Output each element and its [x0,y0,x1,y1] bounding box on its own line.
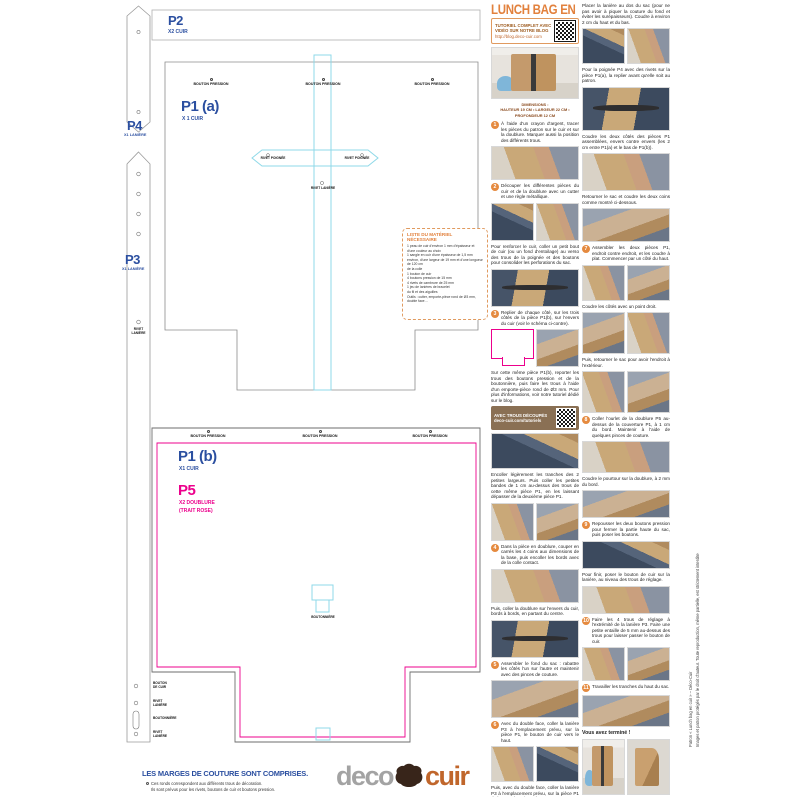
step-photo [536,746,579,782]
tutorial-step-text: Puis, avec du double face, coller la lan… [491,785,579,797]
step-number-badge: 5 [491,661,499,669]
step-photo [491,569,579,603]
snap-marker: BOUTON PRESSION [185,430,231,438]
step-photo [582,208,670,242]
step-photo [582,312,625,354]
step-instruction: Puis, retourner le sac pour avoir l'endr… [582,357,670,368]
fold-diagram-row [491,329,579,367]
pattern-drawing [0,0,490,800]
snap-hole-icon [429,430,432,433]
strap-rivet-label: RIVET LANIÈRE [306,187,340,191]
step-instruction: Encoller légèrement les tranches des 2 p… [491,472,579,500]
p2-outline [152,10,480,40]
tutorial-step-text: 11Travailler les tranches du haut du sac… [582,684,670,692]
step-instruction: Dans la pièce en doublure, couper en car… [501,544,579,566]
step-photo-pair [582,647,670,681]
step-instruction: Puis, avec du double face, coller la lan… [491,785,579,797]
tutorial-title: LUNCH BAG EN CUIR [491,3,579,17]
step-instruction: Puis, coller la doublure sur l'envers du… [491,606,579,617]
buttonhole-label: BOUTONNIÈRE [153,717,187,721]
deco-cuir-logo: deco cuir [336,758,469,794]
step-number-badge: 8 [582,416,590,424]
step-instruction: Coudre les côtés avec un point droit. [582,304,657,310]
step-photo [582,28,625,64]
p1a-label: P1 (a) [181,98,219,115]
step-instruction: Avec du double face, coller la lanière P… [501,721,579,743]
handle-rivet-label: RIVET POIGNÉE [256,157,290,161]
step-photo [582,265,625,301]
step-instruction: Pour la poignée P4 avec des rivets sur l… [582,67,670,84]
p2-sub: X2 CUIR [168,29,188,35]
materials-box: LISTE DU MATÉRIEL NÉCESSAIRE 1 peau de c… [402,228,488,320]
strap-rivet-label: RIVETLANIÈRE [153,700,179,707]
step-photo [491,433,579,469]
step-photo [491,746,534,782]
step-instruction: Découper les différentes pièces du cuir … [501,183,579,200]
qr-code-icon [555,21,575,41]
p1a-sub: X 1 CUIR [182,116,203,122]
step-photo-pair [582,28,670,64]
tutorial-step-text: 10Faire les 4 trous de réglage à l'extré… [582,617,670,645]
materials-title: LISTE DU MATÉRIEL NÉCESSAIRE [407,232,483,242]
tutorial-step-text: Pour renforcer le cuir, coller un petit … [491,244,579,266]
snap-hole-icon [322,78,325,81]
p1b-sub: X1 CUIR [179,466,199,472]
step-number-badge: 7 [582,245,590,253]
blog-url: http://blog.deco-cuir.com [495,34,552,40]
tutorial-step-text: Coudre les deux côtés des pièces P1 asse… [582,134,670,151]
p4-sub: X1 LANIÈRE [124,133,146,137]
step-photo-pair [491,203,579,241]
copyright-line-2: Images et patron protégés par le droit d… [695,552,700,747]
footer-note: Ils sont prévus pour les rivets, boutons… [151,787,275,792]
blog-qr-box: TUTORIEL COMPLET AVEC VIDÉO SUR NOTRE BL… [491,18,579,44]
tutorial-step-text: 7Assembler les deux pièces P1, endroit c… [582,245,670,262]
step-photo [491,269,579,307]
logo-text-deco: deco [336,761,393,792]
step-instruction: Travailler les tranches du haut du sac. [592,684,669,692]
tutorial-step-text: Encoller légèrement les tranches des 2 p… [491,472,579,500]
finished-message: Vous avez terminé ! [582,730,670,736]
step-instruction: Faire les 4 trous de réglage à l'extrémi… [592,617,670,645]
p4-outline [127,6,150,132]
tutorial-step-text: 8Coller l'ourlet de la doublure P5 au-de… [582,416,670,438]
p1b-label: P1 (b) [178,448,217,465]
handle-rivet-label: RIVET POIGNÉE [340,157,374,161]
p5-sub: X2 DOUBLURE [179,500,215,506]
buttonhole-label: BOUTONNIÈRE [305,616,341,620]
tutorial-step-text: Coudre les côtés avec un point droit. [582,304,670,310]
logo-text-cuir: cuir [425,761,469,792]
step-number-badge: 1 [491,121,499,129]
step-photo [491,503,534,541]
step-photo [536,329,579,367]
blog-qr-text: TUTORIEL COMPLET AVEC VIDÉO SUR NOTRE BL… [495,23,552,40]
step-photo [491,680,579,718]
step-number-badge: 6 [491,721,499,729]
snap-hole-icon [207,430,210,433]
step-instruction: Coudre les deux côtés des pièces P1 asse… [582,134,670,151]
step-photo [582,441,670,473]
tutorial-step-text: Puis, retourner le sac pour avoir l'endr… [582,357,670,368]
tutorial-step-text: 9Repousser les deux boutons pression pou… [582,521,670,538]
step-photo-pair [491,503,579,541]
step-photo [582,739,625,795]
tutorial-step-text: Puis, coller la doublure sur l'envers du… [491,606,579,617]
tutorial-qr-box: AVEC TROUS DÉCOUPÉSdeco-cuir.com/tutorie… [491,406,579,430]
tutorial-step-text: 2Découper les différentes pièces du cuir… [491,183,579,200]
strap-rivet-label: RIVETLANIÈRE [153,731,179,738]
step-photo [491,47,579,99]
tutorial-step-text: Retourner le sac et coudre les deux coin… [582,194,670,205]
step-instruction: Retourner le sac et coudre les deux coin… [582,194,670,205]
step-instruction: Replier de chaque côté, sur les trois cô… [501,310,579,327]
step-photo [582,647,625,681]
step-photo [582,586,670,614]
tutorial-step-text: Sur cette même pièce P1(b), reporter les… [491,370,579,403]
step-photo [582,87,670,131]
snap-hole-icon [431,78,434,81]
tutorial-step-text: Pour la poignée P4 avec des rivets sur l… [582,67,670,84]
p3-label: P3 [125,252,140,267]
step-photo [582,153,670,191]
tutorial-step-text: 5Assembler le fond du sac : rabattre les… [491,661,579,678]
dimensions-caption: DIMENSIONS :HAUTEUR 19 CM • LARGEUR 22 C… [491,102,579,118]
fold-schema-diagram [491,329,534,359]
p2-label: P2 [168,13,183,28]
step-photo-pair [582,371,670,413]
tutorial-step-text: 1À l'aide d'un crayon d'argent, tracer l… [491,121,579,143]
copyright-line-1: Patron « Lunch bag en cuir » – Déco-Cuir [688,552,693,747]
tutorial-step-text: 6Avec du double face, coller la lanière … [491,721,579,743]
step-photo [536,203,579,241]
step-number-badge: 4 [491,544,499,552]
tutorial-column-2: Placer la lanière au dos du sac (pour ne… [582,3,670,797]
step-photo [491,203,534,241]
leather-hide-icon [394,763,424,789]
step-number-badge: 2 [491,183,499,191]
leather-button-label: BOUTONDE CUIR [153,682,179,689]
step-photo [627,28,670,64]
step-instruction: Repousser les deux boutons pression pour… [592,521,670,538]
step-photo [627,371,670,413]
tutorial-step-text: Placer la lanière au dos du sac (pour ne… [582,3,670,25]
step-instruction: Pour finir, poser le bouton de cuir sur … [582,572,670,583]
step-photo [582,695,670,727]
tutorial-column-1: LUNCH BAG EN CUIR TUTORIEL COMPLET AVEC … [491,3,579,797]
step-number-badge: 9 [582,521,590,529]
step-photo-pair [582,265,670,301]
strap-rivet-label: RIVETLANIÈRE [126,328,151,335]
step-instruction: Coudre le pourtour sur la doublure, à 2 … [582,476,670,487]
step-photo [627,265,670,301]
step-photo [627,739,670,795]
snap-hole-icon [210,78,213,81]
snap-marker: BOUTON PRESSION [407,430,453,438]
tutorial-step-text: Pour finir, poser le bouton de cuir sur … [582,572,670,583]
snap-marker: BOUTON PRESSION [409,78,455,86]
step-instruction: Coller l'ourlet de la doublure P5 au-des… [592,416,670,438]
step-photo [491,620,579,658]
step-instruction: Assembler le fond du sac : rabattre les … [501,661,579,678]
snap-hole-icon [319,430,322,433]
step-photo-pair [491,746,579,782]
tutorial-step-text: 3Replier de chaque côté, sur les trois c… [491,310,579,327]
step-photo-pair [582,312,670,354]
footer-note: Ces ronds correspondent aux différents t… [146,781,262,786]
step-photo [491,146,579,180]
p5-sub2: (TRAIT ROSE) [179,508,213,514]
circle-bullet-icon [146,782,149,785]
step-photo [627,647,670,681]
step-number-badge: 3 [491,310,499,318]
step-photo [582,490,670,518]
material-item: 1 peau de cuir d'environ 1 mm d'épaisseu… [407,244,483,253]
materials-list: 1 peau de cuir d'environ 1 mm d'épaisseu… [407,244,483,304]
material-item: 1 sangle en cuir d'une épaisseur de 1,5 … [407,253,483,267]
step-number-badge: 10 [582,617,590,625]
p4-label: P4 [127,118,142,133]
step-instruction: Assembler les deux pièces P1, endroit co… [592,245,670,262]
qr-code-icon [556,408,576,428]
step-instruction: Sur cette même pièce P1(b), reporter les… [491,370,579,403]
pattern-sheet: P2 X2 CUIR P1 (a) X 1 CUIR P1 (b) X1 CUI… [0,0,800,800]
p5-label: P5 [178,482,195,499]
material-item: Outils : cutter, emporte-pièce rond de Ø… [407,295,483,304]
step-instruction: À l'aide d'un crayon d'argent, tracer le… [501,121,579,143]
p3-sub: X1 LANIÈRE [122,267,144,271]
seam-allowance-notice: LES MARGES DE COUTURE SONT COMPRISES. [142,769,308,778]
step-instruction: Pour renforcer le cuir, coller un petit … [491,244,579,266]
p3-outline [127,152,150,742]
snap-marker: BOUTON PRESSION [297,430,343,438]
tutorial-step-text: 4Dans la pièce en doublure, couper en ca… [491,544,579,566]
step-instruction: Placer la lanière au dos du sac (pour ne… [582,3,670,25]
tutorial-step-text: Coudre le pourtour sur la doublure, à 2 … [582,476,670,487]
step-number-badge: 11 [582,684,590,692]
step-photo [627,312,670,354]
step-photo-pair [582,739,670,795]
step-photo [582,371,625,413]
step-photo [536,503,579,541]
snap-marker: BOUTON PRESSION [300,78,346,86]
snap-marker: BOUTON PRESSION [188,78,234,86]
step-photo [582,541,670,569]
